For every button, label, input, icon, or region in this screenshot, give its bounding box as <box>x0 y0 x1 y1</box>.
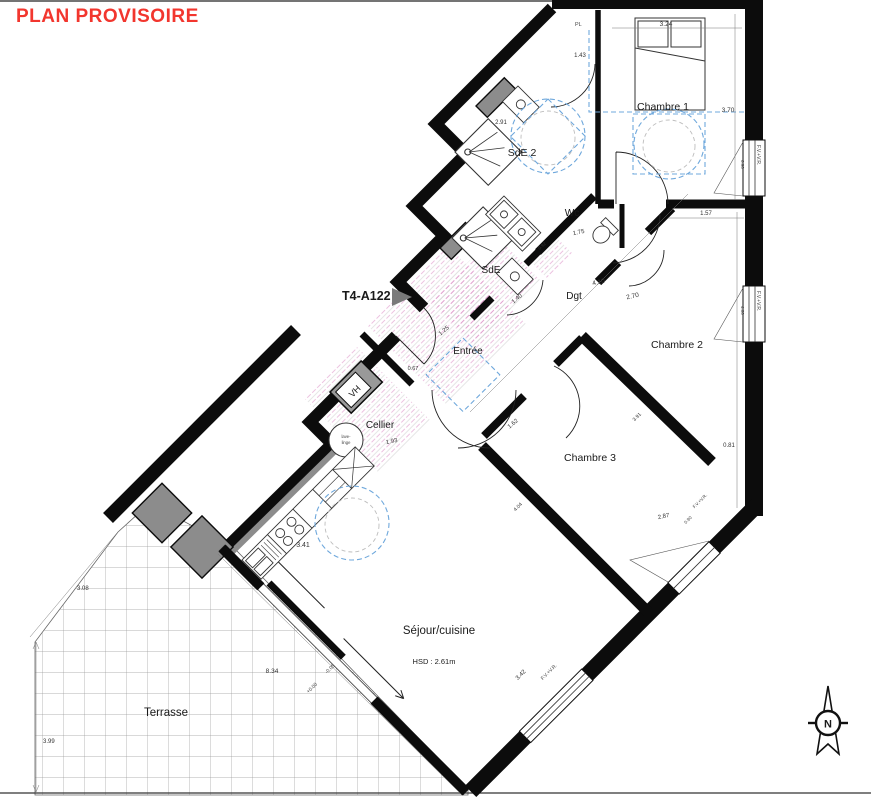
sde-label: SdE <box>482 265 501 276</box>
dim-3-99: 3.99 <box>43 739 55 745</box>
wc-label: Wc <box>565 208 579 219</box>
dim: 1.43 <box>574 53 586 59</box>
dim: 2.91 <box>495 120 507 126</box>
window-label: F.V.+V.R. <box>755 145 761 165</box>
dim: 4.10 <box>592 278 606 288</box>
chambre1-access-square <box>633 114 705 174</box>
chambre1-turning-circle <box>634 109 704 179</box>
sejour-label: Séjour/cuisine <box>403 625 475 637</box>
chambre1-label: Chambre 1 <box>637 101 689 113</box>
sejour-height-note: HSD : 2.61m <box>413 657 456 666</box>
dim: 1.75 <box>572 229 585 237</box>
unit-id-label: T4-A122 <box>342 289 391 303</box>
inner-circle <box>643 120 695 172</box>
party-wall <box>108 330 296 518</box>
closet-label: PL <box>575 22 582 28</box>
terrace: Terrasse 3.99 3.08 <box>0 503 871 795</box>
appliance-label: lave- <box>341 434 351 439</box>
window-swing-lines <box>714 142 743 196</box>
door-sde2 <box>551 64 595 107</box>
dim: 3.42 <box>515 669 528 682</box>
floor-plan-page: PLAN PROVISOIRE Terrasse 3.99 3.08 <box>0 0 871 800</box>
north-compass-icon: N <box>808 686 848 754</box>
dim: 8.34 <box>266 668 279 675</box>
sde2-turning-circle <box>511 99 585 173</box>
wall-se-diagonal <box>465 499 763 797</box>
chambre3-nw-wall-b <box>484 396 524 436</box>
dgt-label: Dgt <box>566 291 582 302</box>
dim: 3.70 <box>722 107 735 114</box>
floor-plan-drawing: Terrasse 3.99 3.08 <box>0 0 871 800</box>
window-label: F.V.+V.R. <box>755 291 761 311</box>
window-swing-lines <box>714 288 743 342</box>
wall-right <box>745 0 763 512</box>
inner-circle <box>325 498 379 552</box>
bed <box>635 18 705 110</box>
door-chambre3 <box>554 366 580 438</box>
chambre2-label: Chambre 2 <box>651 339 703 351</box>
dim: 0.90 <box>683 515 693 525</box>
dim: 3.91 <box>632 412 643 423</box>
chambre3-sejour-wall <box>482 446 648 612</box>
window-label: F.V.+V.R. <box>692 493 708 509</box>
sejour-window <box>519 669 593 743</box>
cellier-label: Cellier <box>366 420 395 431</box>
dim: 3.24 <box>660 21 673 28</box>
toilet <box>589 218 619 248</box>
door-wc <box>629 250 664 286</box>
dim: 0.90 <box>740 160 745 169</box>
chambre2-chambre3-wall <box>582 336 712 462</box>
dim: 2.70 <box>626 292 640 302</box>
chambre3-nw-wall-a <box>556 338 582 364</box>
pillow <box>671 21 701 47</box>
sejour-turning-circle <box>315 486 389 560</box>
dim: 1.62 <box>507 418 520 431</box>
window-label: F.V.+V.R. <box>540 663 559 682</box>
dim-3-08: 3.08 <box>77 586 89 592</box>
dim: 1.57 <box>700 211 712 217</box>
entree-label: Entrée <box>453 346 483 357</box>
chambre3-label: Chambre 3 <box>564 452 616 464</box>
dim: 4.04 <box>513 502 524 513</box>
wall-top <box>552 0 763 9</box>
wc-nw-wall <box>538 196 594 252</box>
appliance-label: linge <box>342 440 352 445</box>
dim: 2.87 <box>657 513 670 521</box>
dim: 0.81 <box>723 443 735 449</box>
terrasse-label: Terrasse <box>144 707 188 719</box>
door-chambre1 <box>616 152 668 204</box>
dim: 4.60 <box>740 306 745 315</box>
north-label: N <box>824 719 832 731</box>
sde2-label: SdE 2 <box>508 147 537 159</box>
dim: 3.41 <box>296 542 310 549</box>
terrace-tiles <box>35 503 468 795</box>
dim: 0.67 <box>408 366 419 372</box>
